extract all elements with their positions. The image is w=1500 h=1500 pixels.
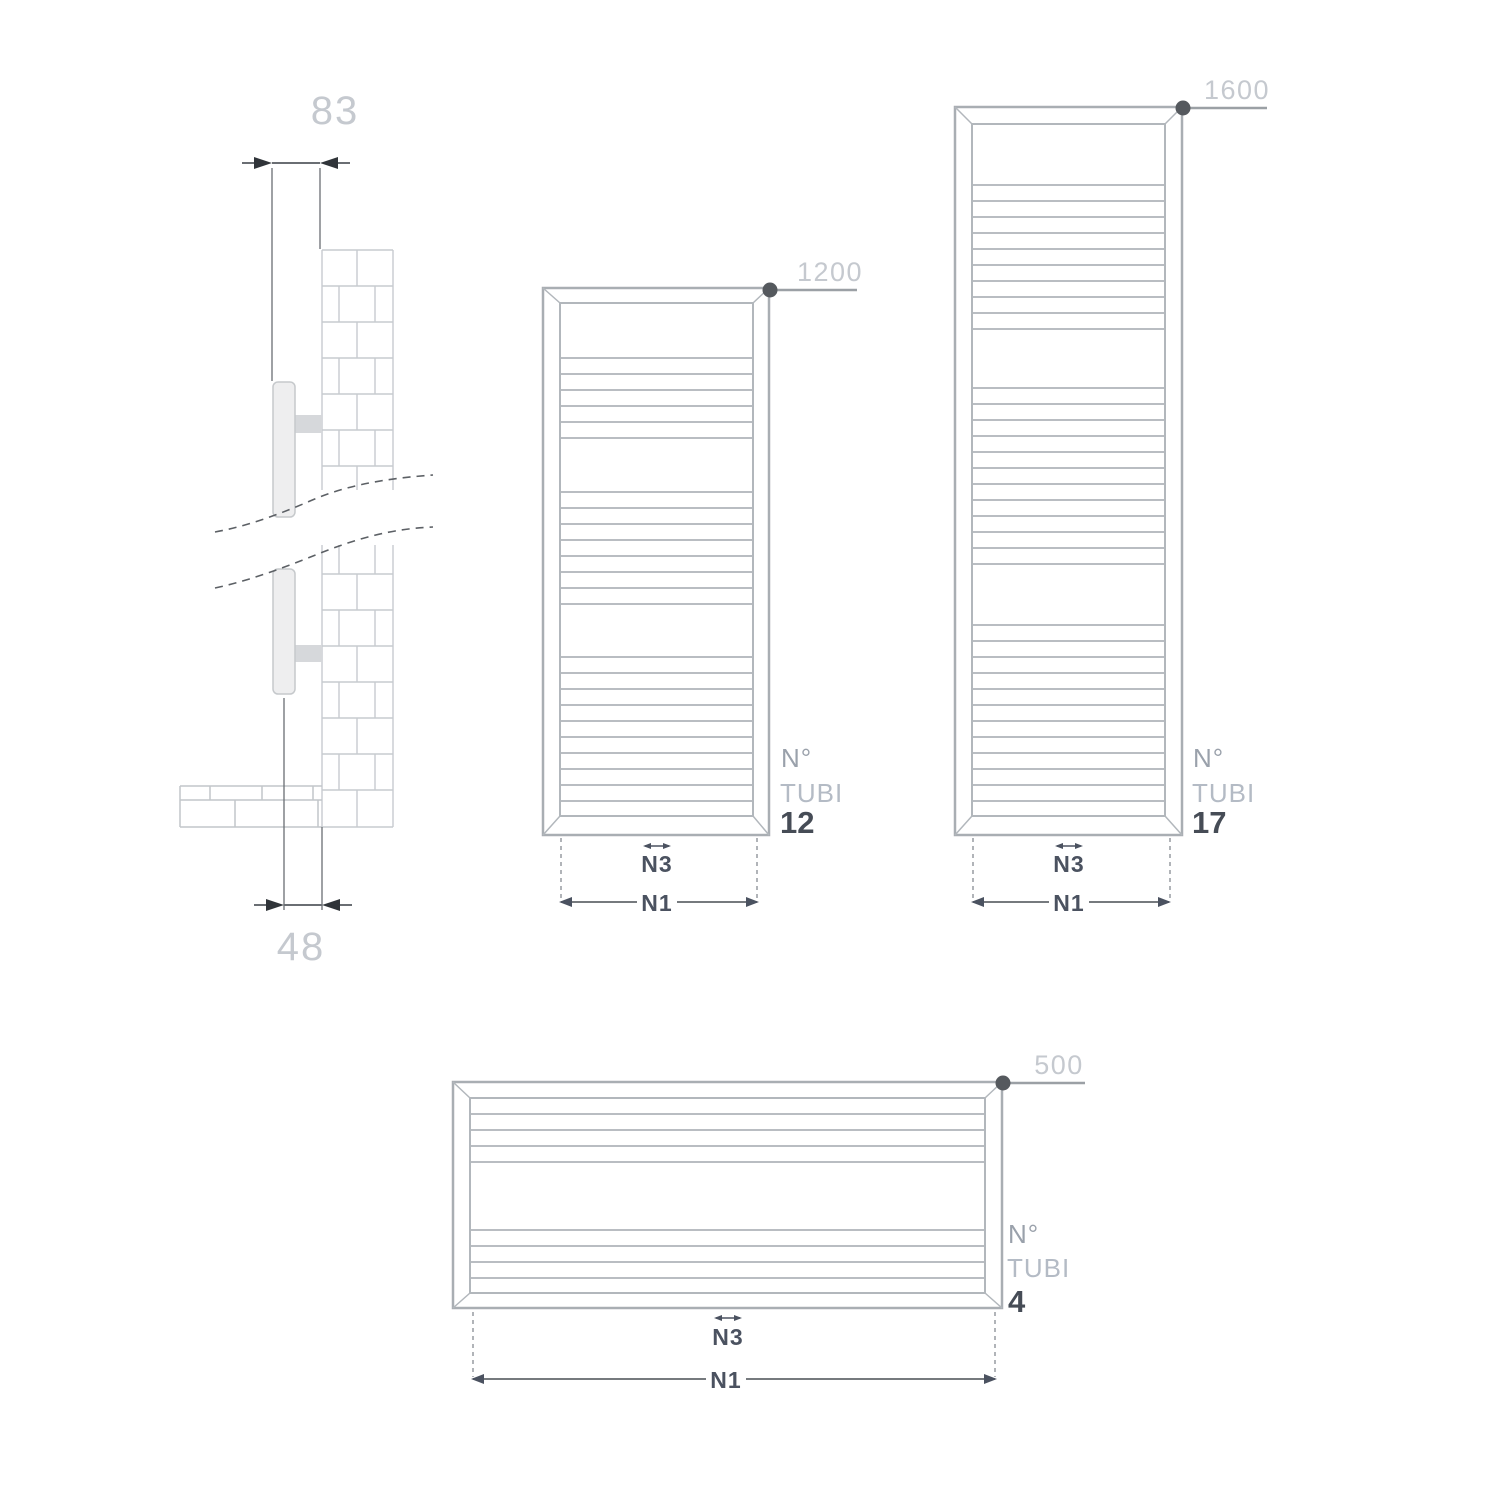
n1-arrow-right-icon xyxy=(1158,897,1171,907)
tube-count-block: N° TUBI 4 xyxy=(1007,1219,1070,1319)
brick-joints xyxy=(339,545,375,827)
n3-label: N3 xyxy=(1053,851,1084,877)
profile-bar-upper xyxy=(273,382,295,517)
n3-label: N3 xyxy=(641,851,672,877)
n1-label: N1 xyxy=(641,890,672,916)
n3-arrow-right-icon xyxy=(1075,843,1083,849)
n3-label: N3 xyxy=(712,1324,743,1350)
n1-arrow-left-icon xyxy=(471,1374,484,1384)
dim-arrow-left-icon xyxy=(266,899,284,911)
width-dimensions: N3 N1 xyxy=(971,838,1171,916)
break-line-lower xyxy=(215,527,433,588)
n1-label: N1 xyxy=(1053,890,1084,916)
n3-dimension: N3 xyxy=(641,843,672,877)
tube-group-2 xyxy=(973,388,1164,564)
radiator-1600-front-view: 1600 N° TUBI 17 N3 N1 xyxy=(955,75,1270,916)
tube-group-1 xyxy=(561,358,752,438)
radiator-outer-frame xyxy=(453,1082,1002,1308)
n3-arrow-right-icon xyxy=(663,843,671,849)
tube-count-value: 17 xyxy=(1192,805,1226,840)
tube-group-3 xyxy=(973,625,1164,801)
height-label: 1200 xyxy=(797,257,863,287)
n1-label: N1 xyxy=(710,1367,741,1393)
profile-bar-lower xyxy=(273,569,295,694)
wall-upper-segment xyxy=(322,250,393,490)
tubi-label: TUBI xyxy=(1192,778,1255,808)
n1-arrow-left-icon xyxy=(559,897,572,907)
floor-slab xyxy=(180,786,322,827)
tube-group-3 xyxy=(561,657,752,801)
tubi-label: TUBI xyxy=(780,778,843,808)
n1-dimension: N1 xyxy=(471,1367,997,1393)
height-dimension-1200: 1200 xyxy=(763,257,864,298)
n3-arrow-left-icon xyxy=(714,1315,722,1321)
n3-dimension: N3 xyxy=(1053,843,1084,877)
n3-arrow-right-icon xyxy=(734,1315,742,1321)
n1-arrow-right-icon xyxy=(984,1374,997,1384)
radiator-inner-frame xyxy=(560,303,753,816)
radiator-technical-drawing-page: 83 xyxy=(0,0,1500,1500)
radiator-side-profile xyxy=(273,382,322,694)
height-dimension-1600: 1600 xyxy=(1176,75,1271,116)
brick-rows xyxy=(322,286,393,466)
tube-count-block: N° TUBI 12 xyxy=(780,743,843,840)
corner-marker-dot-icon xyxy=(1176,101,1191,116)
radiator-inner-frame xyxy=(470,1098,985,1293)
dim-arrow-right-icon xyxy=(322,899,340,911)
radiator-inner-frame xyxy=(972,124,1165,816)
section-break xyxy=(215,475,433,588)
tube-count-block: N° TUBI 17 xyxy=(1192,743,1255,840)
n1-dimension: N1 xyxy=(559,890,759,916)
height-label: 500 xyxy=(1034,1050,1084,1080)
tube-group-1 xyxy=(973,185,1164,329)
height-dimension-500: 500 xyxy=(996,1050,1086,1091)
wall-lower-segment xyxy=(322,545,393,827)
height-label: 1600 xyxy=(1204,75,1270,105)
dim-48-label: 48 xyxy=(277,925,326,969)
corner-marker-dot-icon xyxy=(996,1076,1011,1091)
n3-arrow-left-icon xyxy=(1055,843,1063,849)
n-degree-label: N° xyxy=(1008,1219,1039,1249)
radiator-1200-front-view: 1200 N° TUBI 12 N3 N1 xyxy=(543,257,863,916)
dimension-48: 48 xyxy=(254,698,352,969)
dim-83-label: 83 xyxy=(311,89,360,133)
dim-48-extension-lines xyxy=(284,698,322,910)
wall-bracket-bottom xyxy=(294,645,322,662)
tube-count-value: 4 xyxy=(1008,1284,1026,1319)
tube-count-value: 12 xyxy=(780,805,814,840)
dim-arrow-right-icon xyxy=(320,157,338,169)
n3-dimension: N3 xyxy=(712,1315,743,1350)
tube-group-1 xyxy=(471,1114,984,1162)
dim-arrow-left-icon xyxy=(254,157,272,169)
width-dimensions: N3 N1 xyxy=(471,1312,997,1393)
floor-outline xyxy=(180,786,322,827)
n-degree-label: N° xyxy=(781,743,812,773)
radiator-technical-diagram: 83 xyxy=(0,0,1500,1500)
frame-bevels xyxy=(453,1082,1002,1308)
dimension-83: 83 xyxy=(242,89,359,381)
tube-group-2 xyxy=(471,1230,984,1278)
tube-group-2 xyxy=(561,492,752,604)
radiator-500-front-view: 500 N° TUBI 4 N3 N1 xyxy=(453,1050,1085,1393)
floor-joints xyxy=(210,786,318,827)
n1-arrow-left-icon xyxy=(971,897,984,907)
corner-marker-dot-icon xyxy=(763,283,778,298)
tubi-label: TUBI xyxy=(1007,1253,1070,1283)
n1-dimension: N1 xyxy=(971,890,1171,916)
side-section-view: 83 xyxy=(180,89,433,969)
wall-bracket-top xyxy=(294,415,322,433)
break-line-upper xyxy=(215,475,433,532)
n1-arrow-right-icon xyxy=(746,897,759,907)
dim-83-extension-lines xyxy=(272,168,320,381)
n-degree-label: N° xyxy=(1193,743,1224,773)
n3-arrow-left-icon xyxy=(643,843,651,849)
width-dimensions: N3 N1 xyxy=(559,838,759,916)
